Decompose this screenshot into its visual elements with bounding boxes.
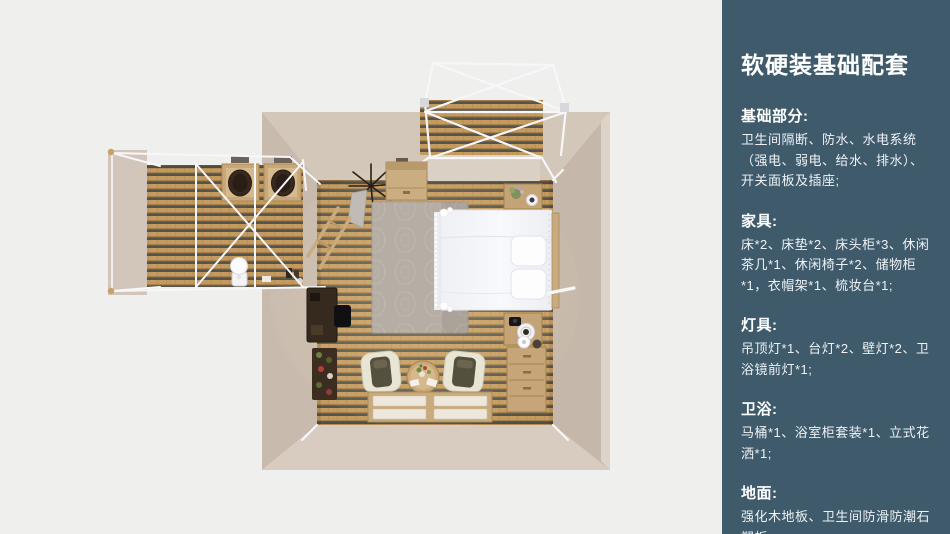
armchair-left	[360, 350, 402, 394]
pillow	[511, 236, 546, 266]
section-flooring: 地面: 强化木地板、卫生间防滑防潮石塑板;	[741, 482, 934, 534]
desk-chair	[334, 305, 351, 327]
section-furniture-heading: 家具:	[741, 210, 934, 231]
section-lighting-heading: 灯具:	[741, 314, 934, 335]
plant-stand	[312, 348, 337, 400]
section-lighting: 灯具: 吊顶灯*1、台灯*2、壁灯*2、卫浴镜前灯*1;	[741, 314, 934, 380]
info-panel: 软硬装基础配套 基础部分: 卫生间隔断、防水、水电系统（强电、弱电、给水、排水）…	[722, 0, 950, 534]
nightstand-top	[504, 184, 542, 209]
section-bathroom-body: 马桶*1、浴室柜套装*1、立式花洒*1;	[741, 423, 934, 464]
section-lighting-body: 吊顶灯*1、台灯*2、壁灯*2、卫浴镜前灯*1;	[741, 339, 934, 380]
bed	[434, 207, 559, 311]
floorplan-area	[0, 0, 722, 534]
section-flooring-body: 强化木地板、卫生间防滑防潮石塑板;	[741, 507, 934, 534]
toilet	[231, 258, 248, 287]
panel-title: 软硬装基础配套	[741, 46, 934, 80]
section-basics-body: 卫生间隔断、防水、水电系统（强电、弱电、给水、排水）、开关面板及插座;	[741, 130, 934, 192]
section-furniture-body: 床*2、床垫*2、床头柜*3、休闲茶几*1、休闲椅子*2、储物柜*1，衣帽架*1…	[741, 235, 934, 297]
floorplan-render	[0, 0, 722, 534]
page: 软硬装基础配套 基础部分: 卫生间隔断、防水、水电系统（强电、弱电、给水、排水）…	[0, 0, 950, 534]
section-basics-heading: 基础部分:	[741, 105, 934, 126]
pillow	[511, 269, 546, 299]
wardrobe-cabinet	[386, 158, 427, 200]
section-bathroom: 卫浴: 马桶*1、浴室柜套装*1、立式花洒*1;	[741, 398, 934, 464]
tatami-platform	[368, 392, 492, 422]
dresser	[507, 336, 546, 412]
section-furniture: 家具: 床*2、床垫*2、床头柜*3、休闲茶几*1、休闲椅子*2、储物柜*1，衣…	[741, 210, 934, 297]
armchair-right	[442, 350, 486, 394]
section-bathroom-heading: 卫浴:	[741, 398, 934, 419]
tea-table	[407, 361, 439, 393]
waste-bin	[533, 340, 542, 349]
section-basics: 基础部分: 卫生间隔断、防水、水电系统（强电、弱电、给水、排水）、开关面板及插座…	[741, 105, 934, 192]
section-flooring-heading: 地面:	[741, 482, 934, 503]
